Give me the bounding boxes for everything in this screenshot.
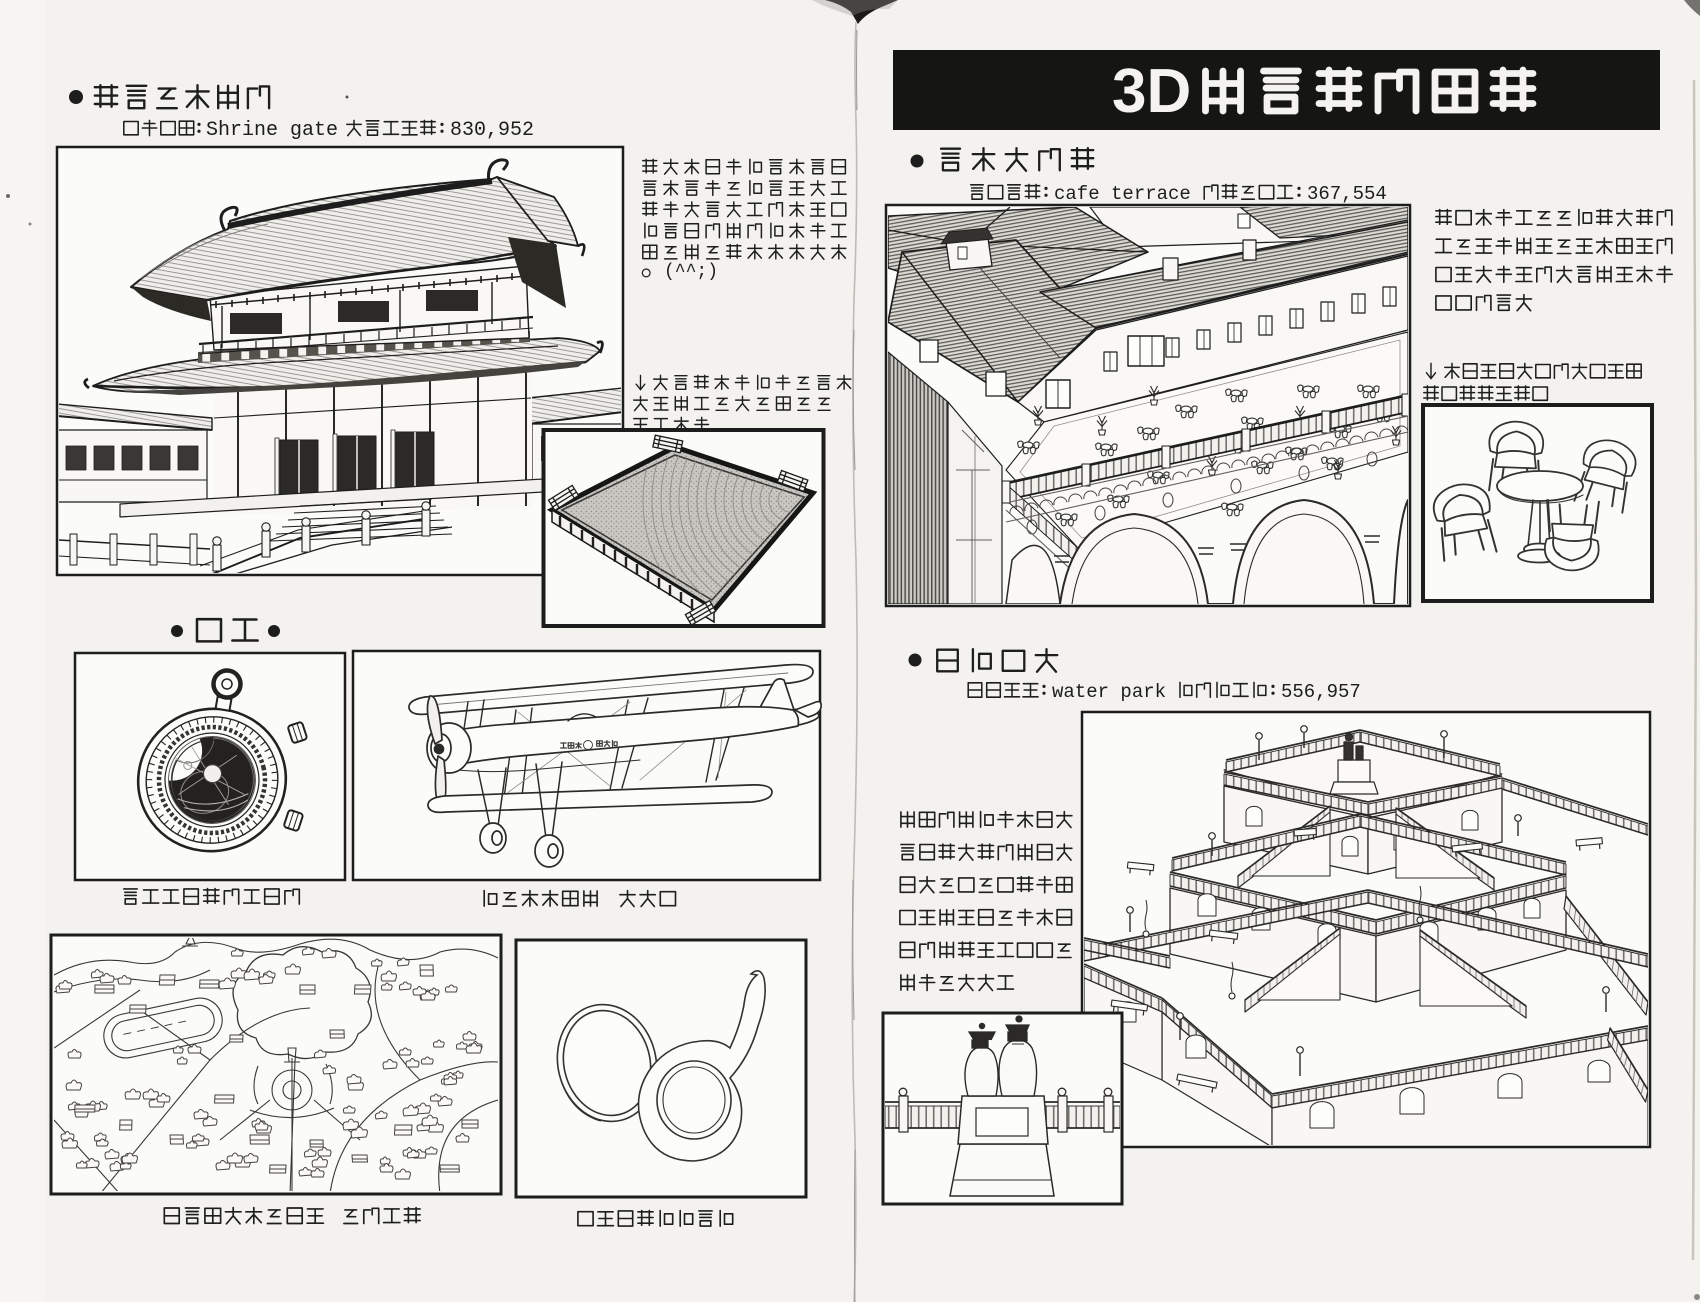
svg-text:(^^;): (^^;) [664,262,718,282]
svg-text:367,554: 367,554 [1307,183,1387,205]
svg-text:556,957: 556,957 [1281,681,1361,703]
svg-text:3D: 3D [1112,57,1191,126]
svg-text:830,952: 830,952 [450,119,534,142]
svg-text:cafe terrace: cafe terrace [1054,183,1191,205]
svg-text:Shrine gate: Shrine gate [206,119,338,142]
svg-text:water park: water park [1052,681,1166,703]
